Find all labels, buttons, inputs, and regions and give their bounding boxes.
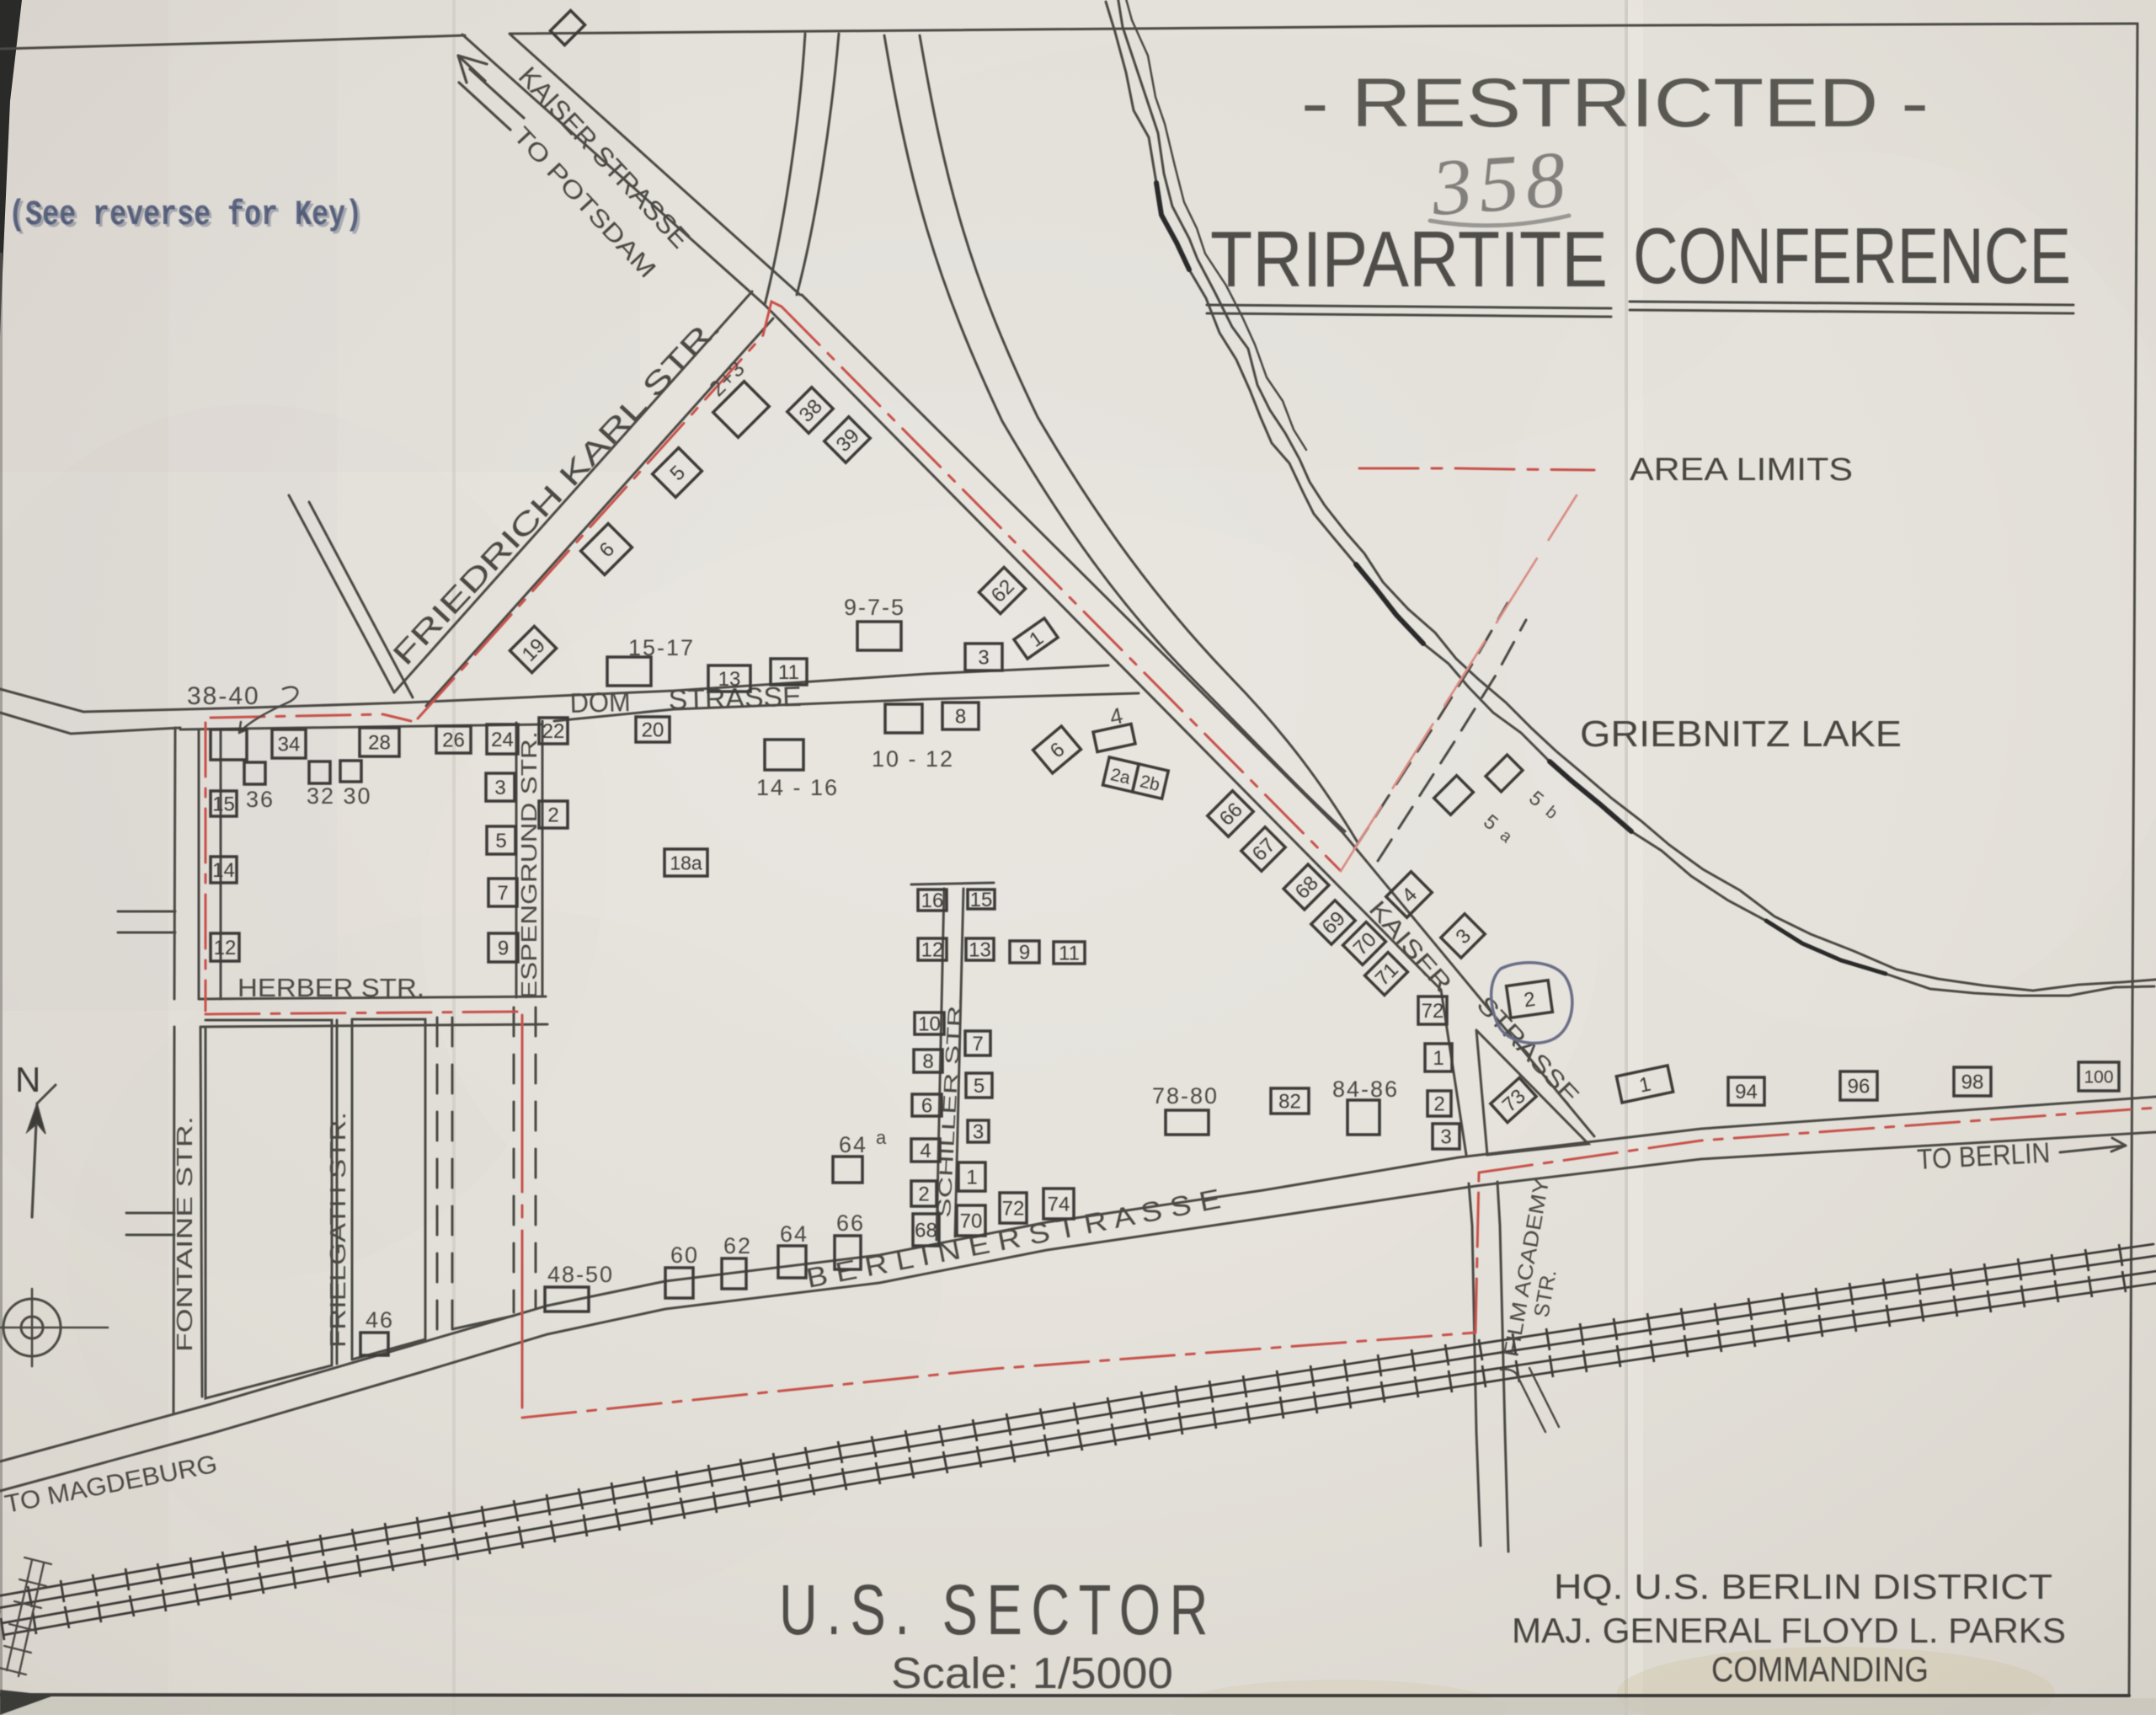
svg-text:3: 3 [973, 1121, 984, 1144]
svg-text:12: 12 [214, 937, 237, 959]
svg-text:62: 62 [723, 1233, 752, 1258]
svg-text:18a: 18a [670, 852, 702, 874]
svg-text:60: 60 [670, 1242, 699, 1268]
svg-text:20: 20 [642, 719, 664, 742]
svg-text:GRIEBNITZ LAKE: GRIEBNITZ LAKE [1580, 713, 1902, 755]
svg-text:34: 34 [278, 734, 301, 756]
svg-text:100: 100 [2084, 1068, 2113, 1087]
svg-text:66: 66 [836, 1210, 865, 1236]
svg-text:1: 1 [966, 1167, 977, 1189]
svg-text:4: 4 [920, 1140, 931, 1162]
svg-text:2: 2 [918, 1183, 929, 1206]
svg-text:10: 10 [918, 1013, 941, 1036]
svg-text:3: 3 [494, 777, 505, 799]
svg-text:72: 72 [1002, 1198, 1025, 1221]
svg-text:38-40: 38-40 [187, 682, 260, 710]
svg-text:14: 14 [212, 859, 235, 882]
svg-text:11: 11 [1059, 943, 1080, 965]
svg-text:26: 26 [442, 729, 465, 752]
svg-text:11: 11 [778, 661, 799, 684]
svg-text:15: 15 [212, 793, 235, 816]
svg-text:(See reverse for Key): (See reverse for Key) [11, 197, 365, 238]
svg-text:16: 16 [921, 890, 944, 912]
svg-text:5: 5 [974, 1075, 985, 1098]
svg-text:22: 22 [542, 720, 565, 743]
svg-text:HQ. U.S. BERLIN DISTRICT: HQ. U.S. BERLIN DISTRICT [1554, 1567, 2052, 1606]
svg-text:28: 28 [368, 732, 391, 755]
svg-text:13: 13 [969, 939, 991, 962]
svg-text:7: 7 [497, 882, 508, 905]
svg-text:9-7-5: 9-7-5 [844, 595, 905, 620]
svg-text:CONFERENCE: CONFERENCE [1633, 211, 2071, 300]
svg-text:2: 2 [547, 804, 558, 827]
svg-text:HERBER STR.: HERBER STR. [237, 973, 424, 1002]
svg-text:82: 82 [1278, 1091, 1301, 1114]
svg-text:84-86: 84-86 [1332, 1077, 1399, 1102]
svg-text:Scale: 1/5000: Scale: 1/5000 [891, 1649, 1173, 1698]
svg-text:72: 72 [1422, 1000, 1444, 1023]
svg-text:6: 6 [921, 1095, 932, 1118]
svg-text:AREA LIMITS: AREA LIMITS [1630, 452, 1853, 488]
svg-text:3: 3 [1440, 1126, 1451, 1149]
svg-text:32 30: 32 30 [307, 783, 372, 809]
svg-text:96: 96 [1848, 1076, 1870, 1098]
svg-text:98: 98 [1961, 1071, 1984, 1094]
svg-text:68: 68 [915, 1220, 937, 1242]
svg-text:13: 13 [718, 668, 741, 691]
svg-text:ESPENGRUND STR.: ESPENGRUND STR. [516, 731, 542, 999]
svg-text:a: a [876, 1127, 887, 1148]
svg-text:74: 74 [1048, 1194, 1070, 1216]
svg-text:12: 12 [921, 939, 944, 962]
svg-text:FONTAINE STR.: FONTAINE STR. [172, 1116, 197, 1352]
svg-text:2: 2 [1433, 1093, 1444, 1116]
svg-text:15: 15 [970, 889, 993, 911]
svg-text:36: 36 [246, 787, 275, 812]
svg-text:7: 7 [972, 1033, 983, 1055]
svg-text:8: 8 [955, 706, 966, 729]
svg-text:64: 64 [780, 1221, 808, 1247]
svg-text:78-80: 78-80 [1152, 1083, 1219, 1109]
svg-text:1: 1 [1433, 1047, 1444, 1070]
svg-text:9: 9 [498, 938, 509, 960]
svg-text:94: 94 [1735, 1081, 1758, 1103]
svg-text:5: 5 [495, 830, 506, 852]
svg-text:14 - 16: 14 - 16 [756, 775, 839, 800]
svg-text:70: 70 [960, 1210, 983, 1233]
svg-text:MAJ. GENERAL FLOYD L. PARKS: MAJ. GENERAL FLOYD L. PARKS [1512, 1611, 2066, 1650]
svg-text:48-50: 48-50 [547, 1262, 614, 1287]
svg-text:3: 3 [978, 647, 989, 670]
svg-text:10 - 12: 10 - 12 [872, 746, 954, 772]
svg-text:U.S. SECTOR: U.S. SECTOR [779, 1570, 1217, 1649]
svg-text:N: N [15, 1060, 40, 1099]
svg-text:8: 8 [922, 1050, 933, 1073]
svg-text:46: 46 [366, 1307, 394, 1333]
svg-text:FRIELGATH STR.: FRIELGATH STR. [325, 1112, 350, 1348]
svg-text:- RESTRICTED -: - RESTRICTED - [1301, 64, 1929, 141]
svg-text:9: 9 [1019, 942, 1030, 964]
svg-text:TRIPARTITE: TRIPARTITE [1210, 215, 1608, 303]
svg-text:24: 24 [491, 729, 514, 751]
svg-text:64: 64 [839, 1132, 867, 1157]
svg-text:COMMANDING: COMMANDING [1711, 1649, 1929, 1689]
svg-text:DOM: DOM [569, 686, 631, 719]
